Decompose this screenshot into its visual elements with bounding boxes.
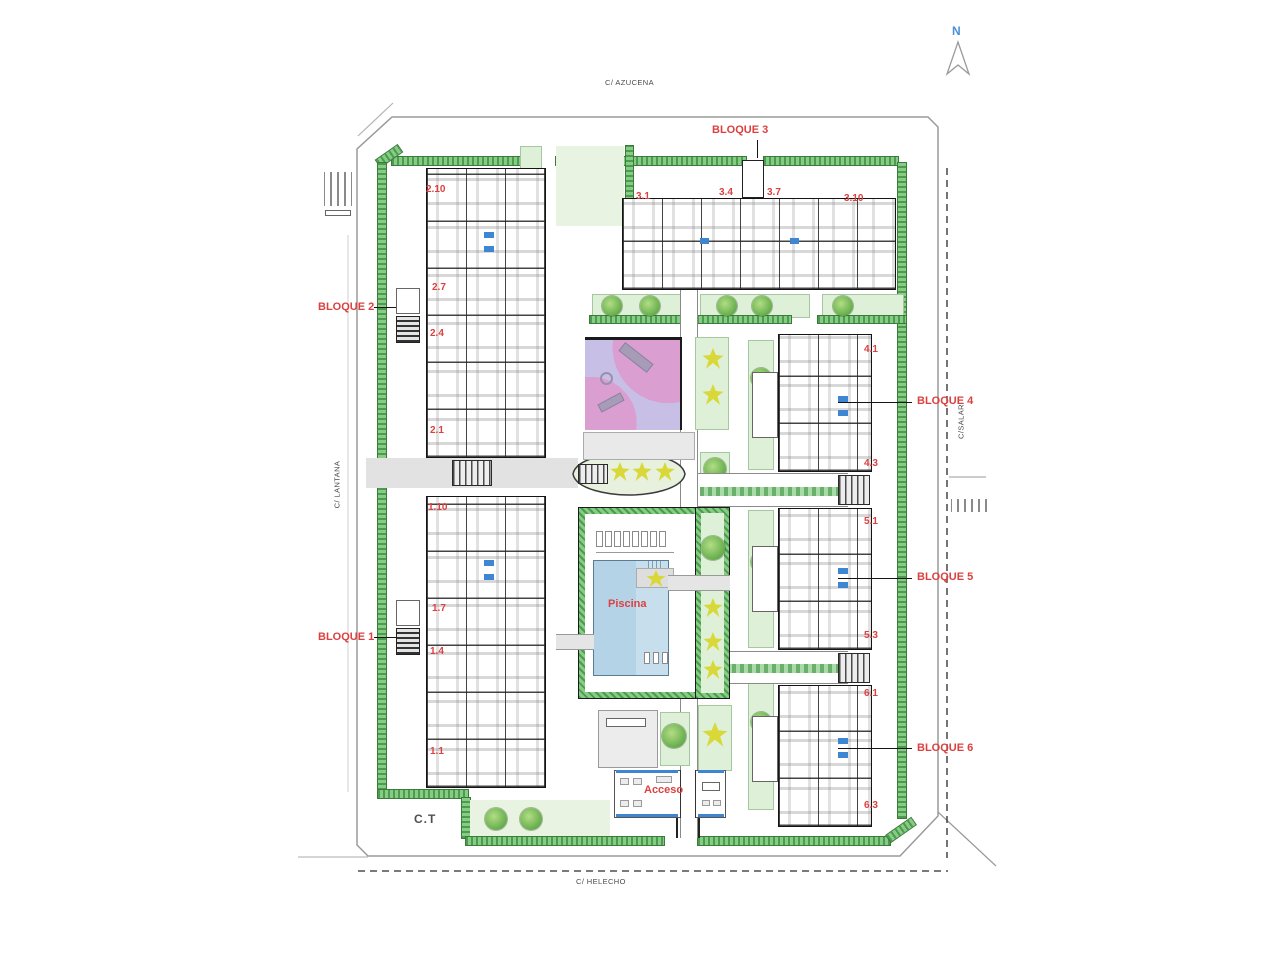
unit-label-6-3: 6.3 (864, 800, 878, 811)
unit-label-2-10: 2.10 (426, 184, 445, 195)
plan-accent (484, 246, 494, 252)
building-bloque-4 (778, 334, 872, 472)
plan-accent (790, 238, 799, 244)
unit-label-1-10: 1.10 (428, 502, 447, 513)
access-glazing-top-2 (698, 770, 724, 773)
unit-label-2-1: 2.1 (430, 425, 444, 436)
building-bloque-1 (426, 496, 546, 788)
lounger-icon (653, 652, 659, 664)
crosswalk-left (324, 172, 352, 206)
entry-wall-left (676, 818, 678, 838)
lounger-icon (641, 531, 648, 547)
stairs-oval (578, 464, 608, 484)
north-arrow: N (938, 24, 982, 78)
unit-label-3-7: 3.7 (767, 187, 781, 198)
north-label: N (952, 24, 961, 38)
unit-label-3-4: 3.4 (719, 187, 733, 198)
building-bloque-5 (778, 508, 872, 650)
building-bloque-3 (622, 198, 896, 290)
leader-bloque-5 (838, 578, 912, 579)
hedge-below-b3-1 (590, 316, 684, 323)
hedge-bottom-2 (698, 837, 890, 845)
leader-bloque-4 (838, 402, 912, 403)
leader-bloque-1 (374, 637, 396, 638)
unit-label-1-7: 1.7 (432, 603, 446, 614)
hedge-bottom-1 (466, 837, 664, 845)
block-label-5: BLOQUE 5 (917, 571, 973, 583)
pool-label: Piscina (608, 598, 647, 610)
access-furniture (620, 778, 629, 785)
tree-icon (640, 296, 660, 316)
lounger-icon (644, 652, 650, 664)
access-glazing-bottom-2 (698, 814, 724, 817)
lounger-icon (614, 531, 621, 547)
tree-icon (717, 296, 737, 316)
crosswalk-left-curb (325, 210, 351, 216)
utility-box (396, 288, 420, 314)
transformer-label: C.T (414, 812, 436, 826)
lounger-icon (596, 531, 603, 547)
play-equipment-icon (600, 372, 613, 385)
walkway-median-1 (700, 487, 846, 496)
unit-label-5-3: 5.3 (864, 630, 878, 641)
tree-icon (520, 808, 542, 830)
unit-label-2-7: 2.7 (432, 282, 446, 293)
lounger-row-2 (644, 652, 674, 668)
site-plan-canvas: N C/ AZUCENA C/ HELECHO C/ LANTANA C/SAL… (0, 0, 1280, 960)
block-label-6: BLOQUE 6 (917, 742, 973, 754)
street-label-azucena: C/ AZUCENA (605, 78, 654, 87)
lounger-row-line (596, 552, 674, 553)
building-bloque-6 (778, 685, 872, 827)
unit-label-5-1: 5.1 (864, 516, 878, 527)
lounger-icon (662, 652, 668, 664)
access-furniture (702, 782, 720, 791)
access-label: Acceso (644, 784, 683, 796)
tree-icon (701, 536, 725, 560)
hedge-right (898, 163, 906, 818)
unit-label-4-1: 4.1 (864, 344, 878, 355)
stairs-left (452, 460, 492, 486)
utility-box (396, 600, 420, 626)
access-glazing-bottom (616, 814, 678, 817)
utility-box-hatched (396, 316, 420, 343)
plan-accent (838, 568, 848, 574)
unit-label-3-10: 3.10 (844, 193, 863, 204)
access-furniture (620, 800, 629, 807)
entry-wall-right (698, 818, 700, 838)
hedge-below-b3-3 (818, 316, 906, 323)
utility-box-hatched (396, 628, 420, 655)
lounger-icon (659, 531, 666, 547)
unit-label-1-1: 1.1 (430, 746, 444, 757)
leader-bloque-3 (757, 140, 758, 158)
building-bloque-5-wing (752, 546, 778, 612)
lounger-icon (632, 531, 639, 547)
garden-topleft-2 (556, 146, 624, 226)
plan-accent (838, 752, 848, 758)
unit-label-6-1: 6.1 (864, 688, 878, 699)
block-label-2: BLOQUE 2 (318, 301, 374, 313)
north-triangle-icon (947, 42, 969, 74)
leader-bloque-2 (374, 307, 396, 308)
tree-icon (752, 296, 772, 316)
block-label-1: BLOQUE 1 (318, 631, 374, 643)
building-bloque-3-core (742, 160, 764, 198)
tree-icon (662, 724, 686, 748)
plaza-slab (583, 432, 695, 460)
plan-accent (484, 560, 494, 566)
leader-bloque-6 (838, 748, 912, 749)
hedge-ct-jog-h (378, 790, 468, 798)
unit-label-4-3: 4.3 (864, 458, 878, 469)
hedge-top-3 (764, 157, 898, 165)
building-bloque-2 (426, 168, 546, 458)
lounger-icon (623, 531, 630, 547)
hedge-ct-jog-v (462, 798, 470, 838)
stairs-b5-b6 (838, 653, 870, 683)
building-bloque-6-wing (752, 716, 778, 782)
tree-icon (485, 808, 507, 830)
building-bloque-4-wing (752, 372, 778, 438)
lounger-icon (650, 531, 657, 547)
walkway-pool-left (556, 634, 594, 650)
hedge-top-1 (392, 157, 540, 165)
access-glazing-top (616, 770, 678, 773)
access-furniture (702, 800, 710, 806)
tree-icon (602, 296, 622, 316)
unit-label-2-4: 2.4 (430, 328, 444, 339)
amenity-detail (606, 718, 646, 727)
tree-icon (833, 296, 853, 316)
access-furniture (633, 800, 642, 807)
lounger-row (596, 531, 674, 551)
street-label-lantana: C/ LANTANA (333, 455, 342, 515)
plan-accent (484, 232, 494, 238)
plan-accent (838, 582, 848, 588)
plan-accent (838, 738, 848, 744)
unit-label-1-4: 1.4 (430, 646, 444, 657)
block-label-4: BLOQUE 4 (917, 395, 973, 407)
access-furniture (713, 800, 721, 806)
access-furniture (656, 776, 672, 783)
plan-accent (838, 410, 848, 416)
lounger-icon (605, 531, 612, 547)
crosswalk-right (951, 499, 987, 512)
street-label-helecho: C/ HELECHO (576, 877, 626, 886)
walkway-pool-right (668, 575, 730, 591)
plan-accent (700, 238, 709, 244)
hedge-below-b3-2 (697, 316, 791, 323)
stairs-b4-b5 (838, 475, 870, 505)
unit-label-3-1: 3.1 (636, 191, 650, 202)
plan-accent (484, 574, 494, 580)
block-label-3: BLOQUE 3 (712, 124, 768, 136)
access-furniture (633, 778, 642, 785)
